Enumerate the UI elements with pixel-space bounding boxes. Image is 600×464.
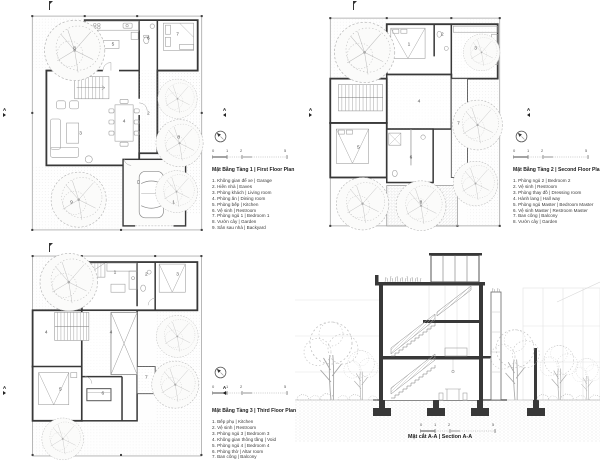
void-opening bbox=[111, 312, 137, 374]
legend-item: 7. Ban công | Balcony bbox=[212, 454, 276, 460]
legend-item: 3. Phòng thay đồ | Dressing room bbox=[513, 190, 593, 196]
room-legend-list: 1. Bếp phụ | Kitchen2. Vệ sinh | Restroo… bbox=[212, 419, 276, 460]
tree-icon bbox=[344, 351, 378, 400]
section-marker: A bbox=[220, 108, 229, 117]
stairs bbox=[55, 312, 89, 340]
scale-label: 0 bbox=[420, 423, 422, 427]
legend-item: 9. Sân sau nhà | Backyard bbox=[212, 225, 272, 231]
room-number: 1 bbox=[114, 272, 117, 277]
section-arrow-icon bbox=[3, 113, 6, 117]
elevation-marker bbox=[350, 1, 357, 10]
room-number: 1 bbox=[172, 201, 175, 206]
room-number: 4 bbox=[123, 121, 126, 126]
tree-icon bbox=[42, 418, 84, 460]
tree-icon bbox=[463, 34, 500, 71]
legend-item: 8. Vườn cây | Garden bbox=[513, 219, 593, 225]
room-number: 4 bbox=[110, 332, 113, 337]
north-arrow-icon bbox=[214, 366, 227, 379]
first-floor-plan-drawing bbox=[26, 6, 208, 238]
scale-label: 5 bbox=[585, 149, 587, 153]
scale-label: 2 bbox=[240, 149, 242, 153]
scale-label: 1 bbox=[434, 423, 436, 427]
section-marker: A bbox=[0, 108, 9, 117]
room-number: 5 bbox=[59, 388, 62, 393]
tree-icon bbox=[540, 345, 578, 400]
section-marker-label: A bbox=[220, 108, 229, 113]
scale-label: 5 bbox=[492, 423, 494, 427]
room-number: 6 bbox=[101, 392, 104, 397]
tree-icon bbox=[453, 161, 498, 206]
room-number: 9 bbox=[70, 201, 73, 206]
room-legend-list: 1. Không gian để xe | Garage2. Hiên nhà … bbox=[212, 178, 272, 231]
second-floor-plan-drawing bbox=[324, 6, 506, 238]
scale-label: 1 bbox=[226, 149, 228, 153]
section-arrow-icon bbox=[223, 391, 226, 395]
section-marker: A bbox=[306, 108, 315, 117]
room-number: 3 bbox=[176, 274, 179, 279]
room-number: 7 bbox=[457, 123, 460, 128]
section-marker-label: A bbox=[0, 108, 9, 113]
roof-plants bbox=[385, 276, 421, 282]
scale-bar: 0 1 2 5 bbox=[513, 149, 593, 160]
section-marker-label: A bbox=[0, 386, 9, 391]
section-arrow-icon bbox=[309, 113, 312, 117]
north-arrow-icon bbox=[214, 130, 227, 143]
section-marker: A bbox=[524, 108, 533, 117]
first-floor-plan-panel: 8567342891 bbox=[26, 6, 208, 238]
tree-icon bbox=[51, 172, 106, 227]
north-arrow-icon bbox=[515, 130, 528, 143]
scale-label: 5 bbox=[284, 385, 286, 389]
scale-label: 0 bbox=[212, 149, 214, 153]
section-marker: A bbox=[220, 386, 229, 395]
room-number: 2 bbox=[147, 113, 150, 118]
scale-label: 2 bbox=[541, 149, 543, 153]
plan-title: Mặt Bằng Tầng 1 | First Floor Plan bbox=[212, 167, 294, 173]
room-number: 2 bbox=[441, 34, 444, 39]
section-marker-label: A bbox=[524, 108, 533, 113]
scale-label: 5 bbox=[284, 149, 286, 153]
section-arrow-icon bbox=[3, 391, 6, 395]
stairs bbox=[338, 85, 382, 111]
elevation-marker bbox=[46, 243, 53, 252]
tree-icon bbox=[334, 22, 394, 82]
tree-icon bbox=[304, 322, 358, 400]
section-title: Mặt cắt A-A | Section A-A bbox=[408, 434, 528, 440]
tree-icon bbox=[158, 79, 197, 118]
tree-icon bbox=[156, 171, 198, 213]
section-panel bbox=[295, 242, 600, 448]
section-arrow-icon bbox=[527, 113, 530, 117]
room-number: 4 bbox=[45, 332, 48, 337]
room-number: 7 bbox=[176, 34, 179, 39]
legend-item: 4. Phòng ăn | Dining room bbox=[212, 196, 272, 202]
room-number: 3 bbox=[474, 48, 477, 53]
tree-icon bbox=[573, 358, 600, 400]
scale-bar: 0 1 2 5 bbox=[420, 423, 500, 434]
room-number: 6 bbox=[410, 157, 413, 162]
scale-label: 2 bbox=[240, 385, 242, 389]
legend-item: 5. Phòng ngủ 4 | Bedroom 4 bbox=[212, 443, 276, 449]
room-number: 8 bbox=[177, 137, 180, 142]
room-number: 3 bbox=[79, 133, 82, 138]
second-floor-plan-panel: 12345678 bbox=[324, 6, 506, 238]
scale-label: 0 bbox=[513, 149, 515, 153]
tree-icon bbox=[156, 316, 198, 358]
section-arrow-icon bbox=[223, 113, 226, 117]
elevation-marker bbox=[46, 1, 53, 10]
section-marker-label: A bbox=[306, 108, 315, 113]
room-number: 6 bbox=[147, 38, 150, 43]
scale-label: 1 bbox=[527, 149, 529, 153]
room-number: 1 bbox=[408, 44, 411, 49]
room-legend-list: 1. Phòng ngủ 2 | Bedroom 22. Vệ sinh | R… bbox=[513, 178, 593, 225]
scale-label: 0 bbox=[212, 385, 214, 389]
room-number: 8 bbox=[420, 201, 423, 206]
section-marker: A bbox=[0, 386, 9, 395]
section-drawing bbox=[295, 242, 600, 448]
tree-icon bbox=[40, 253, 97, 310]
boundary-wall bbox=[534, 348, 537, 400]
scale-bar: 0 1 2 5 bbox=[212, 149, 292, 160]
plan-title: Mặt Bằng Tầng 2 | Second Floor Plan bbox=[513, 167, 600, 173]
legend-item: 5. Phòng ngủ Master | Bedroom Master bbox=[513, 202, 593, 208]
tree-icon bbox=[336, 177, 388, 229]
room-number: 7 bbox=[145, 376, 148, 381]
third-floor-plan-drawing bbox=[26, 248, 208, 464]
section-marker-label: A bbox=[220, 386, 229, 391]
legend-item: 3. Phòng ngủ 3 | Bedroom 3 bbox=[212, 431, 276, 437]
green-screen bbox=[491, 288, 501, 400]
third-floor-plan-panel: 12344567 bbox=[26, 248, 208, 464]
room-number: 2 bbox=[145, 274, 148, 279]
architecture-sheet: 8567342891 bbox=[0, 0, 600, 464]
scale-label: 2 bbox=[448, 423, 450, 427]
room-number: 4 bbox=[418, 100, 421, 105]
tree-icon bbox=[156, 120, 203, 167]
legend-item: 3. Phòng khách | Living room bbox=[212, 190, 272, 196]
room-number: 5 bbox=[357, 147, 360, 152]
room-number: 5 bbox=[112, 44, 115, 49]
plan-title: Mặt Bằng Tầng 3 | Third Floor Plan bbox=[212, 408, 296, 414]
room-number: 8 bbox=[73, 48, 76, 53]
legend-item: 4. Không gian thông tầng | Void bbox=[212, 437, 276, 443]
roof-clerestory bbox=[431, 256, 479, 283]
tree-icon bbox=[152, 361, 199, 408]
